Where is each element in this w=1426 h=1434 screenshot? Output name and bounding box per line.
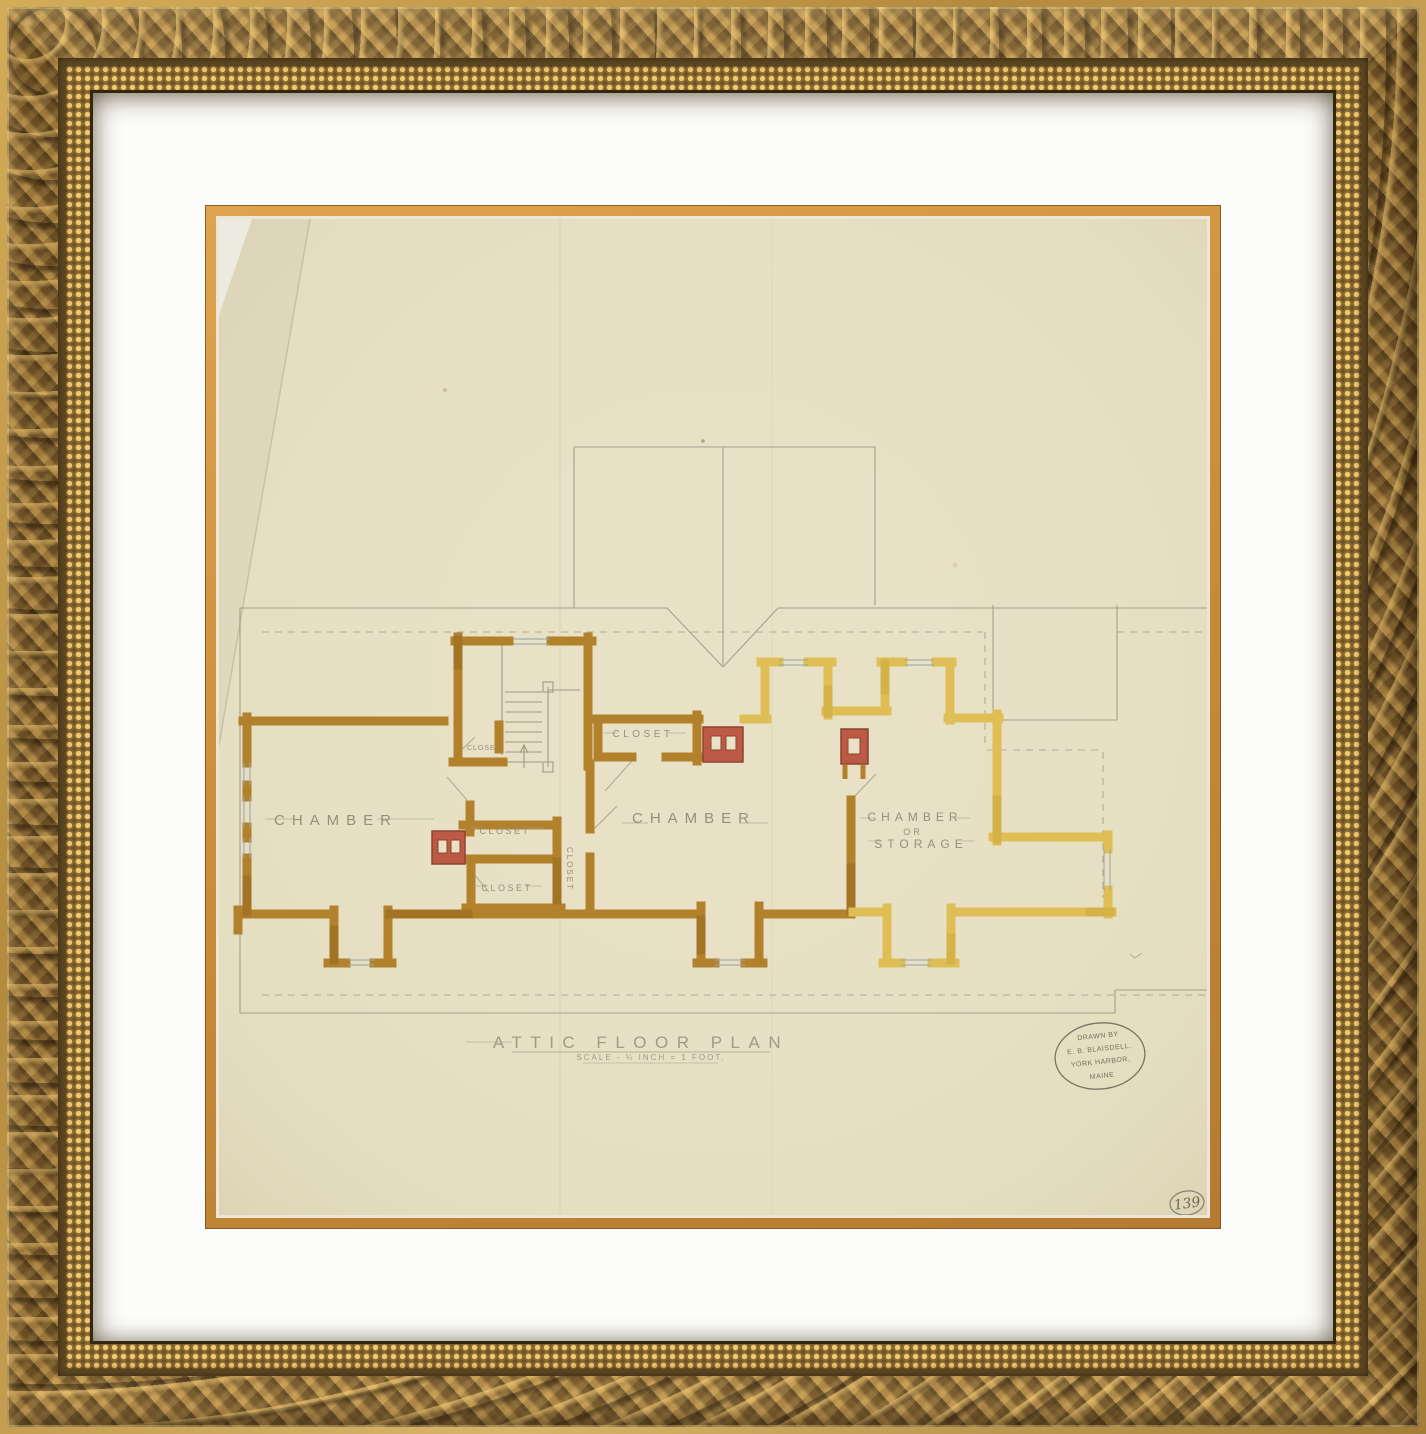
framed-artwork: CHAMBER CHAMBER CHAMBER OR STORAGE CLOSE… <box>0 0 1426 1434</box>
chimney-center-flue <box>711 736 721 750</box>
drawing-title: ATTIC FLOOR PLAN <box>493 1033 789 1052</box>
drawing-scale-note: SCALE - ¼ INCH = 1 FOOT. <box>576 1053 725 1062</box>
label-closet-lower: CLOSET <box>481 883 532 893</box>
label-chamber-center: CHAMBER <box>632 810 756 827</box>
label-closet-hall: CLOSET <box>612 729 673 740</box>
drawing-paper: CHAMBER CHAMBER CHAMBER OR STORAGE CLOSE… <box>219 219 1207 1215</box>
label-chamber-right-1: CHAMBER <box>867 810 962 824</box>
chimney-center <box>703 727 743 762</box>
paper-speck <box>443 388 447 392</box>
label-chamber-left: CHAMBER <box>274 812 398 829</box>
chimney-center-flue <box>726 736 736 750</box>
label-closet-at-stairs: CLOSET <box>467 745 501 752</box>
attic-floor-plan-drawing: CHAMBER CHAMBER CHAMBER OR STORAGE CLOSE… <box>219 219 1207 1215</box>
label-closet-upper: CLOSET <box>479 826 530 836</box>
label-chamber-right-3: STORAGE <box>874 837 967 851</box>
paper-speck <box>701 439 705 443</box>
chimney-left-flue <box>451 840 460 853</box>
label-chamber-right-2: OR <box>903 827 923 837</box>
paper-speck <box>952 562 957 567</box>
label-closet-corridor: CLOSET <box>565 847 574 891</box>
chimney-left-flue <box>438 840 447 853</box>
chimney-right-flue <box>848 738 860 754</box>
